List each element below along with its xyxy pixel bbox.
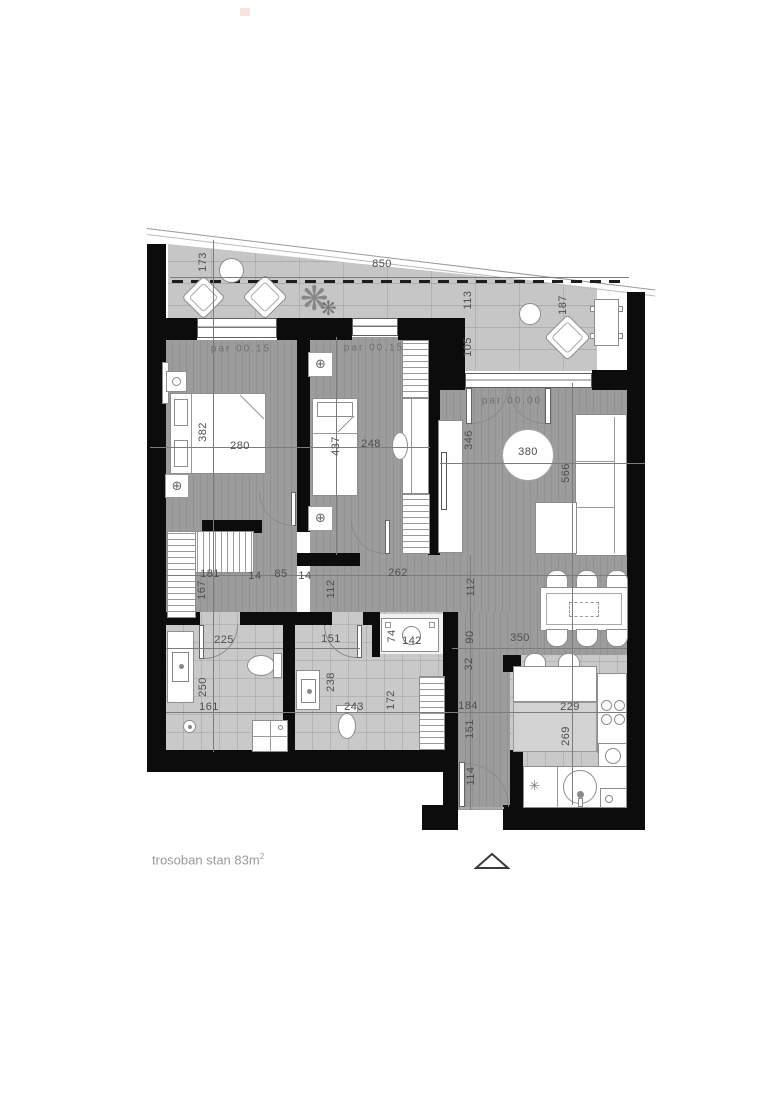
dining-chair <box>606 570 628 588</box>
sofa-chaise <box>535 502 577 554</box>
tv <box>441 452 447 510</box>
pillow <box>174 440 188 467</box>
pillow <box>174 399 188 426</box>
dimension-label: 350 <box>510 632 530 644</box>
wall-bottom-left <box>147 750 443 772</box>
ceiling-light-icon: ⊕ <box>165 474 189 498</box>
artifact-mark <box>240 8 250 16</box>
sofa <box>575 414 627 556</box>
dimension-label: 90 <box>464 630 476 643</box>
basin-drain <box>307 689 312 694</box>
corner-knob <box>605 795 613 803</box>
wardrobe <box>402 340 429 398</box>
lamp <box>172 377 181 386</box>
wall-top-a <box>147 318 197 340</box>
chair-cushion <box>551 321 584 354</box>
dimension-label: 187 <box>557 295 569 315</box>
dimension-line <box>170 277 629 278</box>
toilet <box>247 655 275 676</box>
wall-top-c <box>398 318 432 340</box>
wall-right <box>627 292 645 830</box>
wall-corridor-left <box>443 612 458 830</box>
bedroom2-door-leaf <box>385 520 390 554</box>
dimension-label: 14 <box>298 570 311 582</box>
sofa-cushion-line <box>576 507 614 508</box>
wall-entry-step <box>422 805 443 830</box>
nightstand <box>166 371 187 392</box>
dimension-label: 167 <box>196 580 208 600</box>
dimension-line <box>150 447 430 448</box>
terrace-door-leaf <box>545 388 551 424</box>
dimension-label: 142 <box>402 635 422 647</box>
dimension-label: 250 <box>197 677 209 697</box>
dimension-line <box>295 648 360 649</box>
kitchen-corner-unit <box>600 788 627 808</box>
hall-wardrobe <box>419 676 445 750</box>
dining-chair <box>576 570 598 588</box>
dining-chair <box>606 629 628 647</box>
dimension-label: 437 <box>330 436 342 456</box>
plan-title: trosoban stan 83m2 <box>152 852 264 867</box>
kitchen-counter <box>513 702 597 752</box>
dimension-label: 229 <box>560 701 580 713</box>
dimension-label: 269 <box>560 726 572 746</box>
floor-level-label: par 00.15 <box>344 343 404 354</box>
dimension-label: 105 <box>462 337 474 357</box>
floor-level-label: par 00.15 <box>211 344 271 355</box>
wall-bed2-bottom <box>297 553 360 566</box>
dimension-line <box>213 240 214 752</box>
desk-line <box>411 399 412 493</box>
dimension-label: 248 <box>361 438 381 450</box>
washbasin <box>172 652 189 682</box>
dimension-label: 566 <box>560 463 572 483</box>
mattress-line <box>313 433 357 434</box>
dimension-label: 382 <box>197 422 209 442</box>
counter-divider <box>557 767 558 807</box>
sink-drain <box>577 791 584 798</box>
ceiling-light-icon: ⊕ <box>308 352 333 377</box>
blanket-fold <box>336 416 356 432</box>
cooktop-burner <box>601 700 612 711</box>
cooktop-burner <box>601 714 612 725</box>
vanity <box>296 670 320 710</box>
north-arrow-icon <box>474 850 510 870</box>
dishwasher-dial <box>605 748 621 764</box>
kitchen-sink <box>563 770 597 804</box>
sofa-back-line <box>614 417 615 553</box>
terrace-dashed-line <box>172 280 627 283</box>
kitchen-island <box>513 666 597 702</box>
dining-table <box>540 587 628 631</box>
cooktop-burner <box>614 700 625 711</box>
dimension-label: 238 <box>325 672 337 692</box>
cooktop-burner <box>614 714 625 725</box>
dimension-label: 151 <box>464 719 476 739</box>
vanity <box>167 631 194 703</box>
ac-bracket <box>618 306 623 312</box>
ac-bracket <box>618 333 623 339</box>
wall-bottom-right <box>503 805 645 830</box>
chair-cushion <box>249 281 280 312</box>
washer-knob <box>385 622 391 628</box>
tray-drain <box>278 725 283 730</box>
dimension-label: 172 <box>385 690 397 710</box>
toilet <box>338 713 356 739</box>
pillow <box>317 402 353 417</box>
dimension-label: 380 <box>518 446 538 458</box>
dimension-label: 112 <box>465 577 477 596</box>
plan-title-sup: 2 <box>260 852 264 861</box>
basin-drain <box>179 664 184 669</box>
dimension-label: 14 <box>248 570 261 582</box>
dimension-line <box>166 712 627 713</box>
ac-bracket <box>590 306 595 312</box>
wall-kitchen-left <box>510 750 523 812</box>
bar-stool <box>558 653 580 667</box>
sofa-cushion-line <box>576 461 614 462</box>
dimension-label: 112 <box>325 579 337 598</box>
dining-chair <box>576 629 598 647</box>
dimension-label: 243 <box>344 701 364 713</box>
bedroom2-window <box>352 318 398 336</box>
dining-chair <box>546 570 568 588</box>
dimension-label: 346 <box>463 430 475 450</box>
ceiling-light-icon: ⊕ <box>308 506 333 531</box>
dimension-label: 850 <box>372 258 392 270</box>
dimension-label: 74 <box>386 629 398 642</box>
tray-line <box>253 736 287 737</box>
entrance-threshold <box>459 807 504 809</box>
dimension-line <box>572 383 573 805</box>
dimension-label: 173 <box>197 252 209 272</box>
dimension-label: 113 <box>462 290 474 309</box>
dimension-label: 181 <box>200 568 220 580</box>
bedroom1-window <box>197 318 277 338</box>
hob-star-icon: ✳ <box>529 780 540 793</box>
dimension-label: 151 <box>321 633 341 645</box>
table-leaf <box>569 602 599 617</box>
terrace-round-table <box>219 258 244 283</box>
dimension-label: 114 <box>465 766 477 785</box>
double-bed <box>170 393 266 474</box>
ac-bracket <box>590 333 595 339</box>
dimension-line <box>166 648 283 649</box>
dimension-label: 161 <box>199 701 219 713</box>
shower-dot <box>188 725 192 729</box>
terrace-round-table <box>519 303 541 325</box>
bathroom2-door-leaf <box>357 625 362 658</box>
dimension-label: 184 <box>458 700 478 712</box>
dining-chair <box>546 629 568 647</box>
shower-head <box>183 720 196 733</box>
wardrobe <box>402 494 430 554</box>
ac-unit <box>594 299 619 346</box>
dimension-line <box>440 463 645 464</box>
dimension-line <box>452 648 627 649</box>
plan-title-text: trosoban stan 83m <box>152 852 260 867</box>
floor-plan: ❋ ❋ ⊕ ⊕ ⊕ <box>0 0 782 1106</box>
dimension-label: 32 <box>463 657 475 670</box>
sink-tap <box>578 798 583 807</box>
blanket-fold <box>240 395 264 419</box>
washbasin <box>301 679 316 703</box>
dimension-label: 85 <box>274 568 287 580</box>
bar-stool <box>524 653 546 667</box>
washer-knob <box>429 622 435 628</box>
headboard-line <box>191 394 192 473</box>
dimension-label: 225 <box>214 634 234 646</box>
wall-closet-left <box>372 612 380 657</box>
floor-level-label: par 00.00 <box>482 396 542 407</box>
dimension-label: 280 <box>230 440 250 452</box>
shower-tray <box>252 720 288 752</box>
wall-top-b <box>277 318 352 340</box>
plant-icon: ❋ <box>320 298 337 318</box>
dimension-label: 262 <box>388 567 408 579</box>
desk-chair <box>392 432 408 460</box>
kitchen-counter-right <box>597 673 627 753</box>
toilet-tank <box>273 653 282 678</box>
